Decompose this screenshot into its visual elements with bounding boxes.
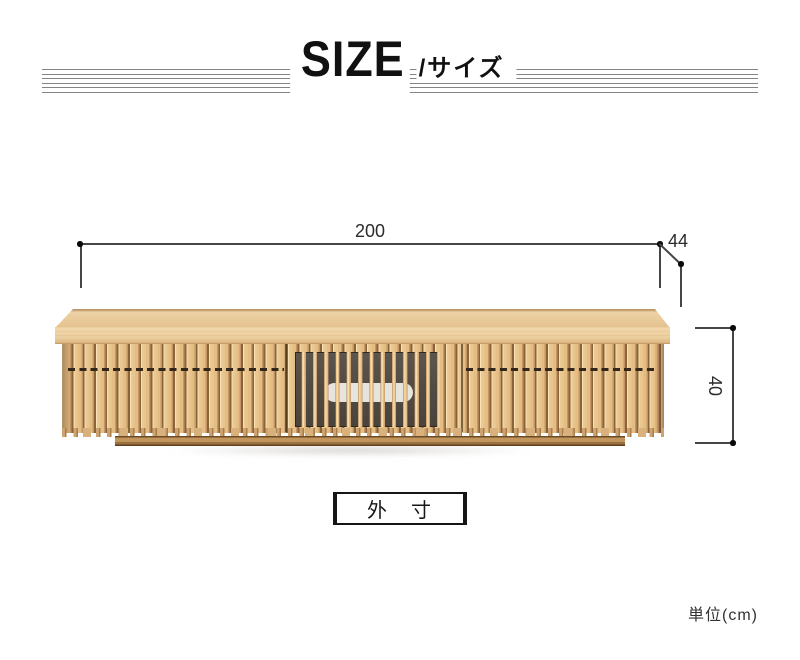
unit-note: 単位(cm): [688, 601, 758, 625]
cabinet-top-front-edge: [55, 327, 670, 344]
title-size-japanese: /サイズ: [417, 57, 517, 81]
center-glass-door: [295, 352, 440, 427]
section-title: SIZE /サイズ: [283, 32, 516, 98]
dimension-endpoint-dot: [678, 261, 684, 267]
door-divider-right: [461, 344, 463, 432]
depth-dimension-label: 44: [668, 232, 688, 250]
outer-dimensions-caption-box: 外 寸: [333, 492, 467, 525]
height-dimension-line: [732, 327, 734, 443]
floor-shadow: [80, 444, 620, 460]
dimension-endpoint-dot: [730, 325, 736, 331]
left-drawer-seam: [68, 368, 284, 371]
width-dimension-label: 200: [80, 222, 660, 240]
width-dimension-line: [80, 243, 660, 245]
cabinet-right-side-edge: [655, 344, 664, 433]
height-dimension-label: 40: [706, 376, 724, 396]
height-tick-top: [695, 327, 733, 329]
dimension-endpoint-dot: [730, 440, 736, 446]
dimension-endpoint-dot: [77, 241, 83, 247]
size-diagram-page: SIZE /サイズ 200 44 40 外 寸: [0, 0, 800, 660]
cabinet-plinth: [115, 436, 625, 446]
depth-dimension-line: [680, 263, 682, 307]
glass-door-slats: [295, 352, 440, 427]
height-tick-bottom: [695, 442, 733, 444]
cabinet-left-side-edge: [62, 344, 71, 433]
title-size-text: SIZE: [290, 32, 410, 98]
width-extension-line-left: [80, 243, 82, 288]
outer-dimensions-caption: 外 寸: [367, 494, 433, 523]
cabinet-top-surface: [48, 309, 672, 328]
door-divider-left: [285, 344, 287, 432]
width-extension-line-right: [659, 243, 661, 288]
right-drawer-seam: [466, 368, 658, 371]
